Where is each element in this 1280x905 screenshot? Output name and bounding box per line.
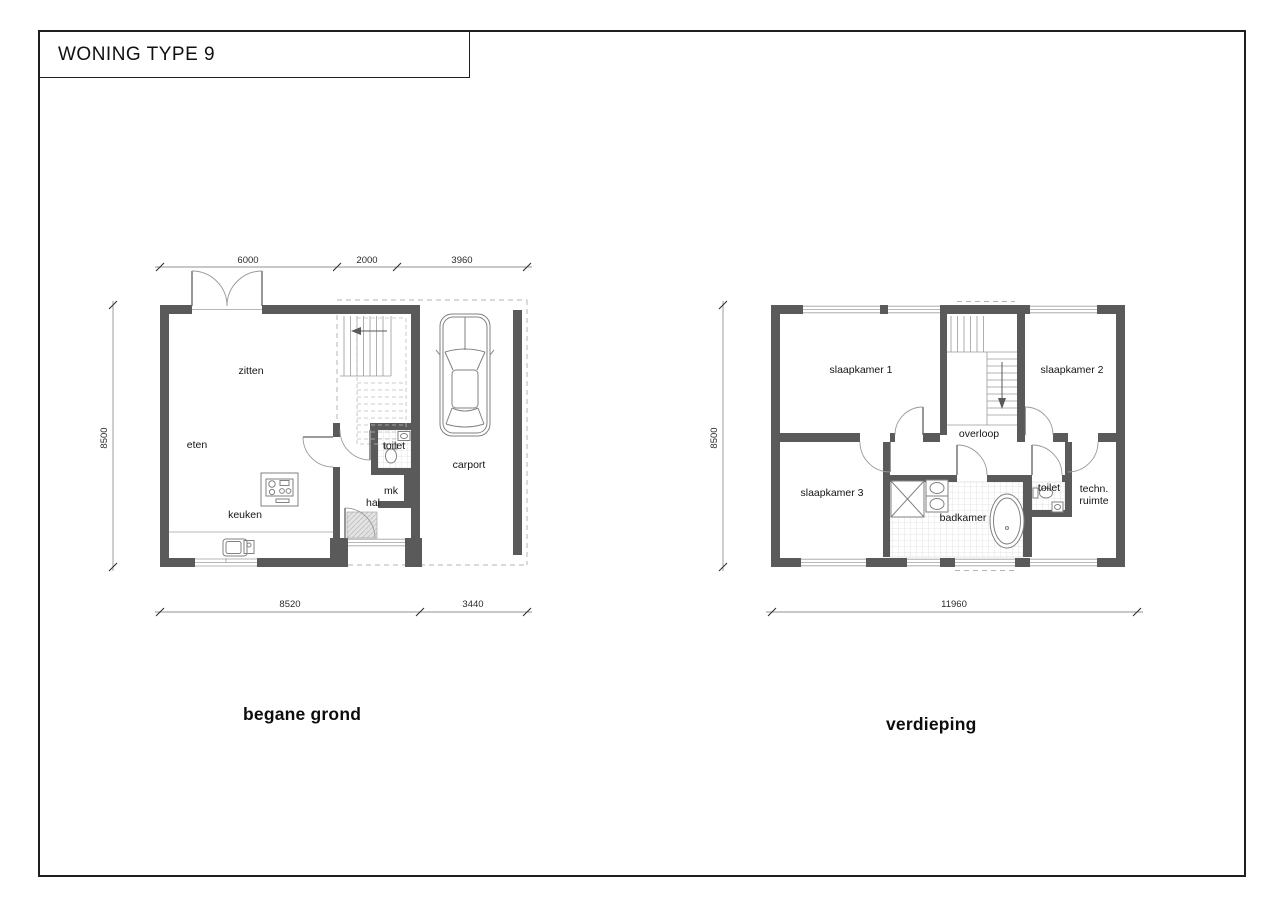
window-slaapkamer1-b (888, 305, 940, 314)
window-slaapkamer2-top (1030, 305, 1097, 314)
dim-top-2: 2000 (356, 255, 377, 266)
room-label-zitten: zitten (238, 365, 263, 377)
toilet-basin-icon (1052, 502, 1063, 512)
french-door-right (227, 271, 262, 306)
room-label-carport: carport (453, 459, 486, 471)
ground-floor-plan: 6000 2000 3960 8500 8520 3440 (95, 240, 565, 630)
room-label-badkamer: badkamer (940, 512, 987, 524)
dim-top-1: 6000 (237, 255, 258, 266)
kitchen-sink-icon (223, 539, 254, 556)
window-hal-front (348, 538, 405, 547)
drawing-title: WONING TYPE 9 (58, 44, 215, 66)
dim-bottom: 11960 (941, 599, 967, 610)
ground-floor-caption: begane grond (243, 704, 361, 725)
room-label-eten: eten (187, 439, 208, 451)
techn-ruimte-door (1068, 442, 1098, 472)
dim-bottom-1: 8520 (279, 599, 300, 610)
french-door-left (192, 271, 227, 306)
ground-stairs (337, 315, 406, 444)
window-slaapkamer3-a (801, 558, 866, 567)
window-badkamer (955, 558, 1015, 567)
carport-side-wall (513, 310, 522, 555)
room-label-toilet: toilet (1038, 482, 1060, 494)
dim-left: 8500 (99, 427, 110, 448)
room-label-techn-line2: ruimte (1079, 495, 1108, 507)
slaapkamer2-door (1025, 407, 1053, 435)
washbasin-icons (926, 480, 948, 512)
stair-direction-arrow (351, 327, 361, 335)
room-label-slaapkamer1: slaapkamer 1 (829, 364, 892, 376)
toilet-door (340, 430, 370, 460)
upper-stairs (947, 316, 1017, 425)
cooktop-icon (261, 473, 298, 506)
badkamer-door (957, 445, 987, 475)
window-techn-bottom (1030, 558, 1097, 567)
dim-top-3: 3960 (451, 255, 472, 266)
room-label-keuken: keuken (228, 509, 262, 521)
shower-icon (891, 481, 924, 517)
room-label-mk: mk (384, 485, 399, 497)
room-label-slaapkamer2: slaapkamer 2 (1040, 364, 1103, 376)
room-label-slaapkamer3: slaapkamer 3 (800, 487, 863, 499)
room-label-toilet: toilet (383, 440, 405, 452)
title-block: WONING TYPE 9 (40, 32, 470, 78)
room-label-hal: hal (366, 497, 380, 509)
dim-bottom-2: 3440 (462, 599, 483, 610)
window-slaapkamer3-b (907, 558, 940, 567)
window-keuken (195, 558, 257, 567)
room-label-overloop: overloop (959, 428, 999, 440)
bathtub-icon (990, 494, 1024, 548)
slaapkamer1-door (895, 407, 923, 435)
room-label-techn-line1: techn. (1080, 483, 1109, 495)
stair-direction-arrow (998, 398, 1006, 409)
car-icon (436, 314, 494, 436)
upper-floor-plan: 8500 11960 (700, 240, 1170, 630)
upper-floor-caption: verdieping (886, 714, 977, 735)
toilet-door (1032, 445, 1062, 475)
dim-left: 8500 (709, 427, 720, 448)
window-slaapkamer1-a (803, 305, 880, 314)
keuken-door (303, 437, 333, 467)
